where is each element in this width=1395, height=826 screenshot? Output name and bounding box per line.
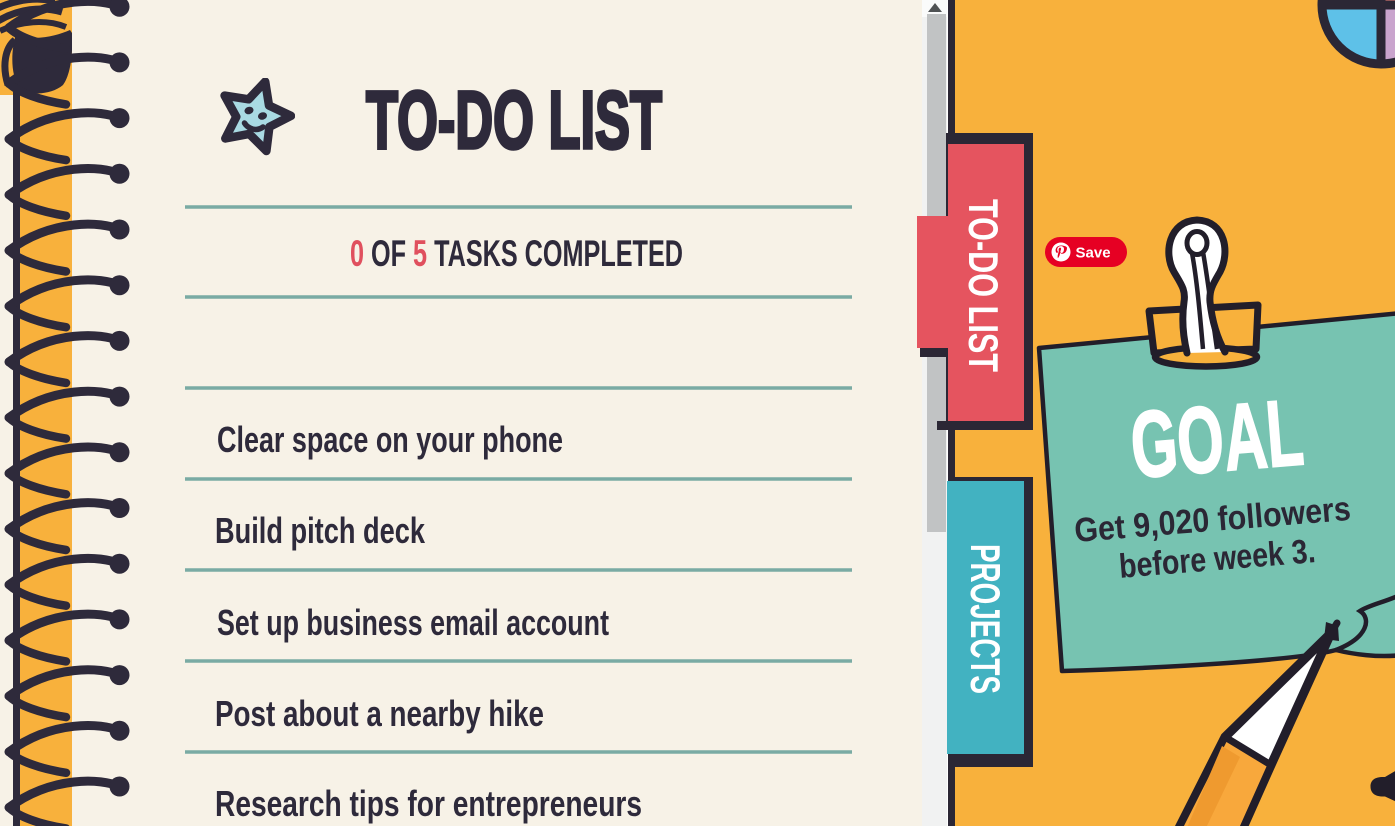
svg-text:TO-DO LIST: TO-DO LIST xyxy=(366,75,662,166)
svg-text:Post about a nearby hike: Post about a nearby hike xyxy=(215,693,544,734)
svg-text:PROJECTS: PROJECTS xyxy=(962,544,1009,694)
svg-text:Research tips for entrepreneur: Research tips for entrepreneurs xyxy=(215,783,642,824)
svg-text:Build pitch deck: Build pitch deck xyxy=(215,510,426,551)
svg-text:Save: Save xyxy=(1076,245,1111,262)
svg-text:TO-DO LIST: TO-DO LIST xyxy=(960,199,1007,372)
svg-text:0 OF 5 TASKS COMPLETED: 0 OF 5 TASKS COMPLETED xyxy=(350,233,683,274)
svg-text:Clear space on your phone: Clear space on your phone xyxy=(217,419,563,460)
svg-text:GOAL: GOAL xyxy=(1127,379,1307,497)
svg-text:Set up business email account: Set up business email account xyxy=(217,602,609,643)
